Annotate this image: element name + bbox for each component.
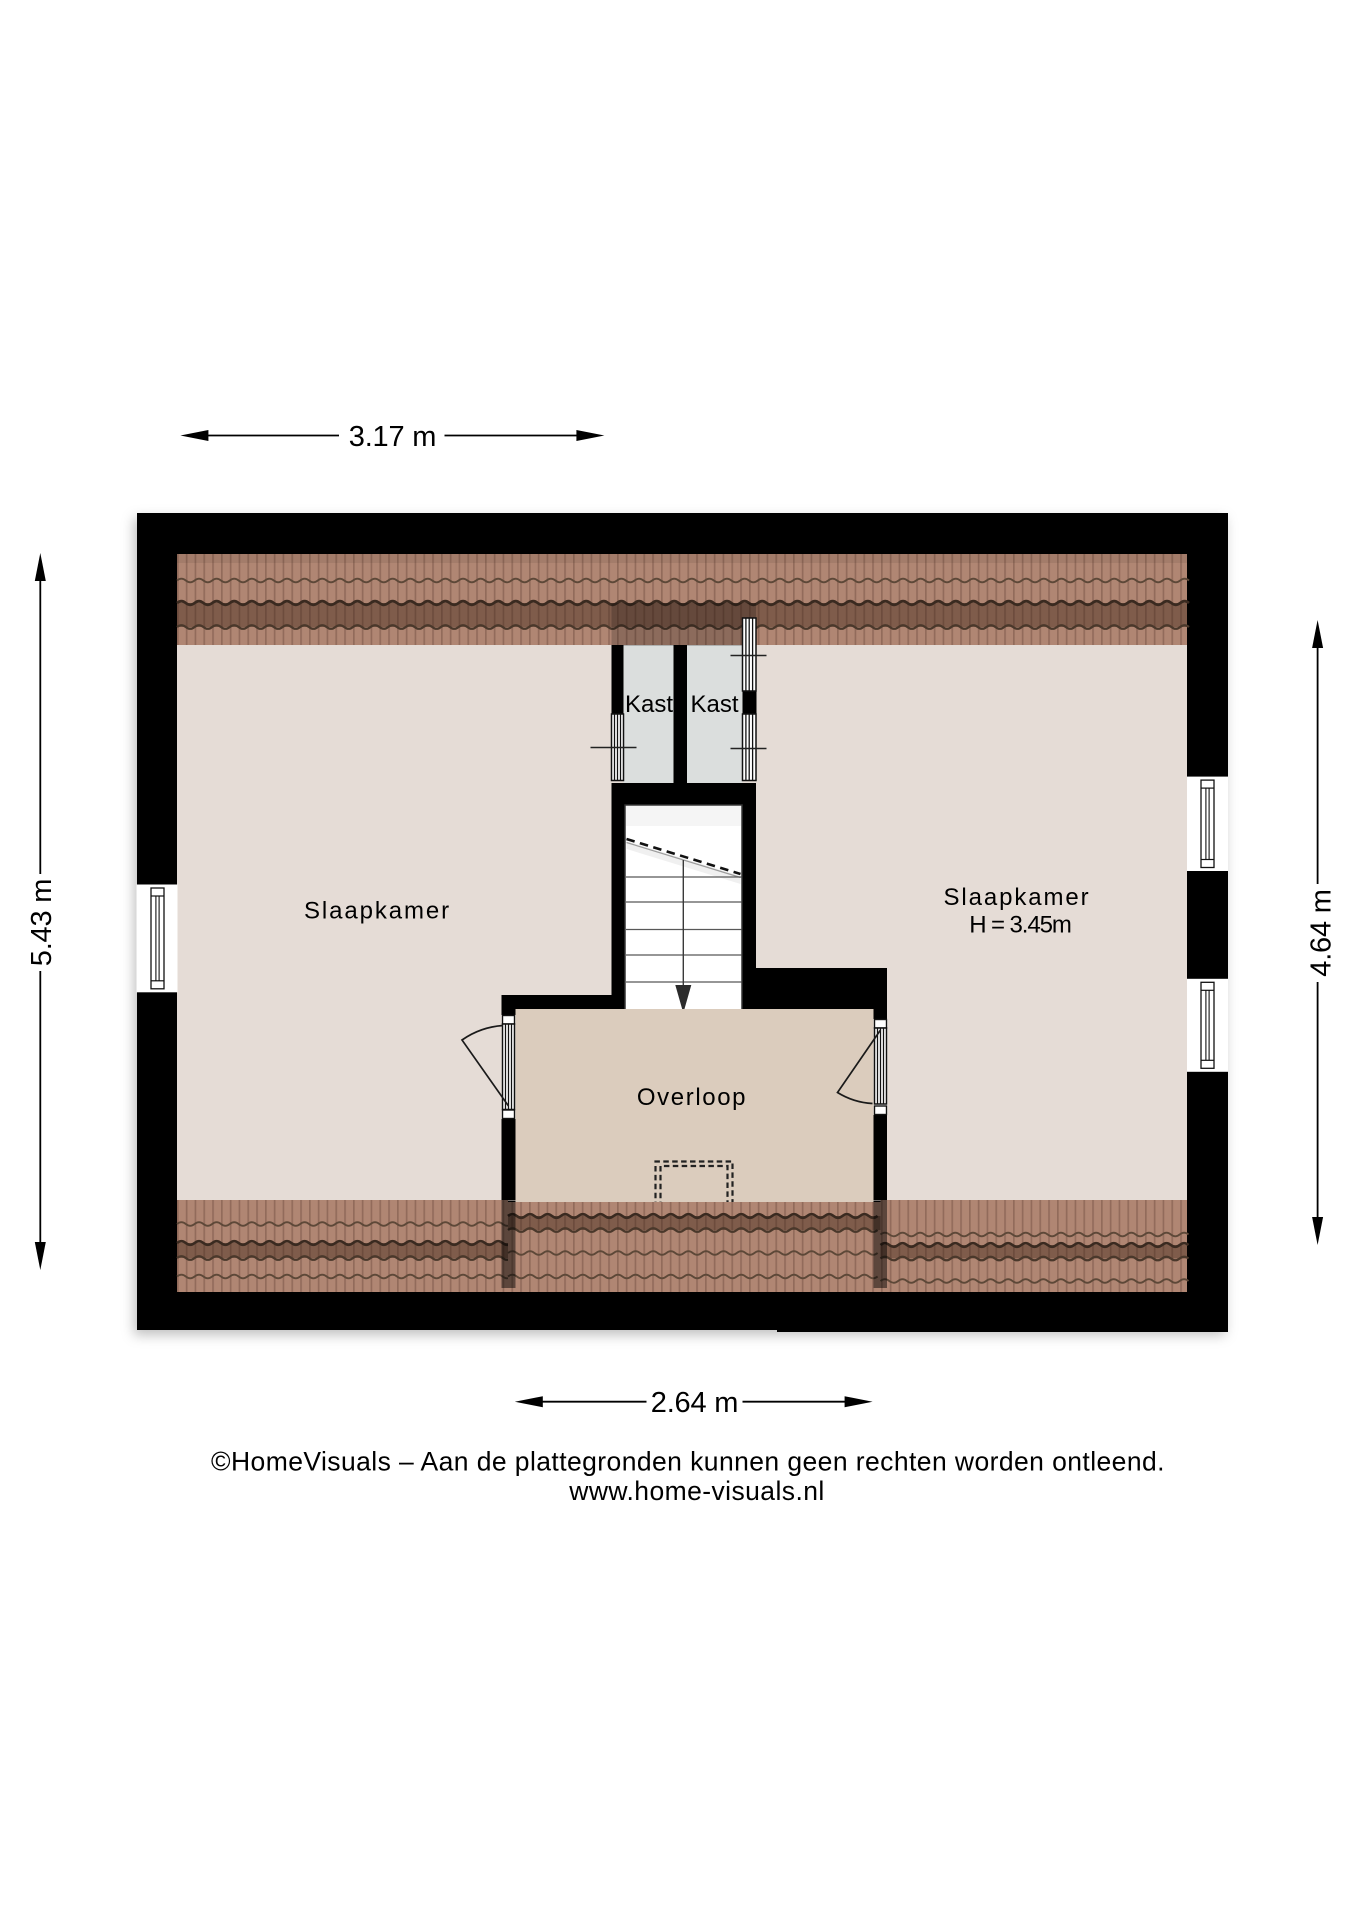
svg-text:Slaapkamer: Slaapkamer — [943, 884, 1090, 911]
svg-text:H = 3.45m: H = 3.45m — [969, 912, 1071, 939]
svg-text:Kast: Kast — [690, 691, 738, 718]
svg-text:Kast: Kast — [625, 691, 673, 718]
svg-text:www.home-visuals.nl: www.home-visuals.nl — [568, 1476, 824, 1506]
svg-text:3.17 m: 3.17 m — [349, 421, 436, 453]
svg-text:2.64 m: 2.64 m — [651, 1387, 738, 1419]
svg-text:©HomeVisuals – Aan de plattegr: ©HomeVisuals – Aan de plattegronden kunn… — [211, 1447, 1165, 1477]
svg-text:Slaapkamer: Slaapkamer — [304, 898, 451, 925]
svg-text:5.43 m: 5.43 m — [26, 879, 58, 966]
svg-text:Overloop: Overloop — [637, 1084, 747, 1111]
svg-text:4.64 m: 4.64 m — [1306, 889, 1338, 976]
